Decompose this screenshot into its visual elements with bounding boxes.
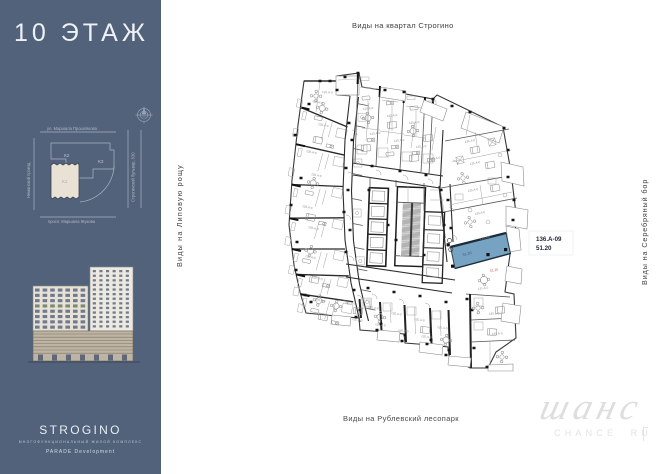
svg-text:135.А-0: 135.А-0 <box>492 331 503 336</box>
svg-text:135.А-0: 135.А-0 <box>322 90 333 95</box>
svg-text:135.А-0: 135.А-0 <box>489 311 500 316</box>
svg-text:135.А-0: 135.А-0 <box>352 317 363 322</box>
svg-text:51.20: 51.20 <box>536 245 552 252</box>
svg-text:136.А-09: 136.А-09 <box>536 236 562 243</box>
